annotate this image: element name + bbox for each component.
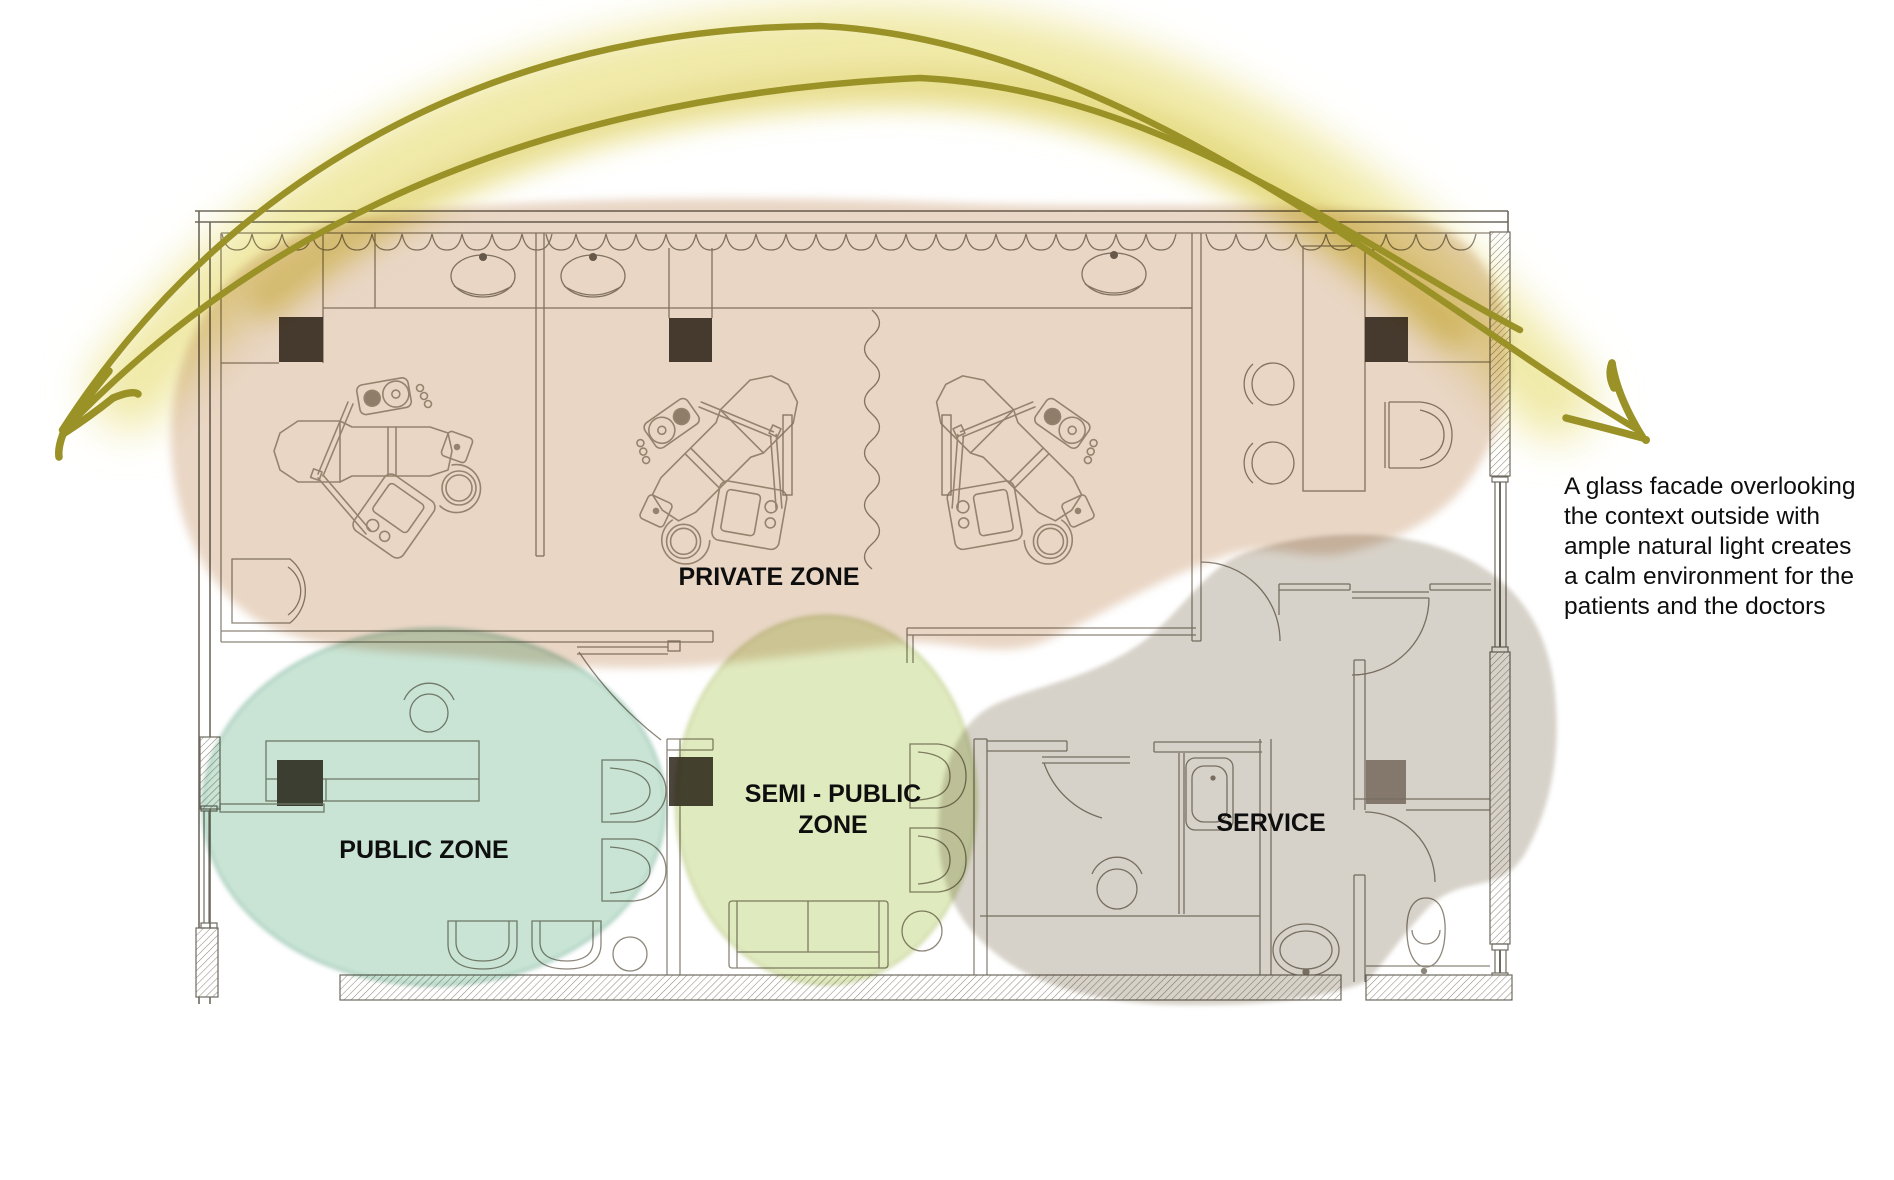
svg-text:ZONE: ZONE [798,811,867,839]
svg-text:SERVICE: SERVICE [1216,809,1325,837]
svg-text:ample natural light creates: ample natural light creates [1564,533,1851,560]
svg-text:the context outside with: the context outside with [1564,503,1820,530]
svg-text:PUBLIC ZONE: PUBLIC ZONE [339,836,508,864]
svg-text:patients and the doctors: patients and the doctors [1564,593,1826,620]
svg-text:PRIVATE ZONE: PRIVATE ZONE [678,563,859,591]
svg-text:SEMI - PUBLIC: SEMI - PUBLIC [745,780,921,808]
svg-text:A glass facade overlooking: A glass facade overlooking [1564,473,1855,500]
svg-text:a calm environment for the: a calm environment for the [1564,563,1854,590]
